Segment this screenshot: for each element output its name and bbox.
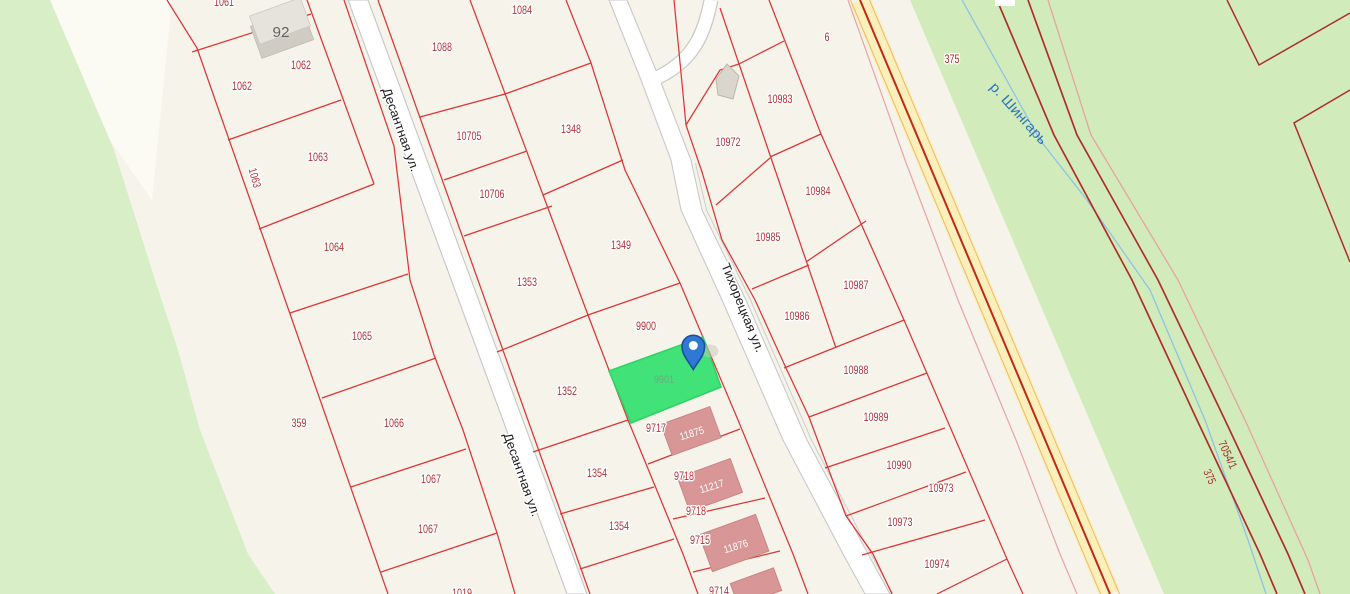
- svg-text:1354: 1354: [609, 521, 629, 533]
- svg-text:9714: 9714: [709, 586, 729, 594]
- svg-text:359: 359: [292, 418, 307, 430]
- svg-text:9900: 9900: [636, 321, 656, 333]
- svg-text:10989: 10989: [864, 412, 889, 424]
- svg-text:10974: 10974: [925, 559, 950, 571]
- svg-text:1061: 1061: [214, 0, 234, 9]
- svg-text:10983: 10983: [768, 94, 793, 106]
- svg-text:1067: 1067: [418, 524, 438, 536]
- svg-text:6: 6: [825, 32, 830, 44]
- svg-text:92: 92: [273, 24, 290, 41]
- svg-text:1348: 1348: [561, 124, 581, 136]
- svg-text:9901: 9901: [654, 374, 674, 386]
- svg-text:10973: 10973: [929, 483, 954, 495]
- svg-text:1066: 1066: [384, 418, 404, 430]
- svg-text:1062: 1062: [232, 81, 252, 93]
- svg-text:9717: 9717: [646, 423, 666, 435]
- svg-text:10990: 10990: [887, 460, 912, 472]
- svg-text:10973: 10973: [888, 517, 913, 529]
- svg-text:10987: 10987: [844, 280, 869, 292]
- svg-text:1019: 1019: [452, 588, 472, 594]
- svg-text:10986: 10986: [785, 311, 810, 323]
- svg-text:1084: 1084: [512, 5, 532, 17]
- svg-text:1354: 1354: [587, 468, 607, 480]
- svg-text:1065: 1065: [352, 331, 372, 343]
- svg-text:10984: 10984: [806, 186, 831, 198]
- svg-text:10706: 10706: [480, 189, 505, 201]
- svg-text:1064: 1064: [324, 242, 344, 254]
- svg-text:1352: 1352: [557, 386, 577, 398]
- svg-text:9718: 9718: [686, 506, 706, 518]
- svg-text:1088: 1088: [432, 42, 452, 54]
- svg-text:10985: 10985: [756, 232, 781, 244]
- svg-text:9718: 9718: [674, 471, 694, 483]
- svg-text:10705: 10705: [457, 131, 482, 143]
- svg-text:9715: 9715: [690, 535, 710, 547]
- svg-text:10988: 10988: [844, 365, 869, 377]
- svg-text:1063: 1063: [308, 152, 328, 164]
- svg-text:1353: 1353: [517, 277, 537, 289]
- svg-text:1349: 1349: [611, 240, 631, 252]
- svg-text:1062: 1062: [291, 60, 311, 72]
- svg-text:10972: 10972: [716, 137, 741, 149]
- svg-text:375: 375: [945, 52, 960, 66]
- svg-text:1067: 1067: [421, 474, 441, 486]
